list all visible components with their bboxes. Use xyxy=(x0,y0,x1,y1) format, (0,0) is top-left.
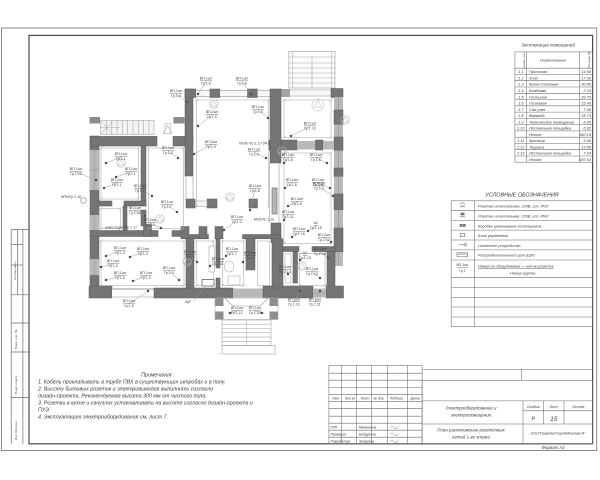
svg-text:Гр.1.9: Гр.1.9 xyxy=(253,110,263,114)
svg-text:1.7: 1.7 xyxy=(518,107,524,112)
svg-text:29.75: 29.75 xyxy=(580,94,592,99)
svg-text:ВП-1шт: ВП-1шт xyxy=(249,184,262,188)
svg-text:дизайн-проекта. Рекомендуемая: дизайн-проекта. Рекомендуемая высота 300… xyxy=(38,393,207,400)
svg-text:Гр.1.9: Гр.1.9 xyxy=(206,145,216,149)
svg-text:1.4: 1.4 xyxy=(518,88,524,93)
svg-text:МОБ/Гр.1.16: МОБ/Гр.1.16 xyxy=(254,218,274,222)
svg-text:Взам. инв. №: Взам. инв. № xyxy=(14,329,18,349)
svg-text:ВП-1шт: ВП-1шт xyxy=(236,77,249,81)
svg-text:ВП-1шт: ВП-1шт xyxy=(125,167,138,171)
svg-text:ВП-1шт: ВП-1шт xyxy=(114,246,127,250)
svg-text:Гр.1.2: Гр.1.2 xyxy=(145,223,155,227)
svg-text:Сан.узел: Сан.узел xyxy=(529,107,546,112)
svg-text:Гр.1.2: Гр.1.2 xyxy=(135,189,145,193)
svg-text:Гр.1.12: Гр.1.12 xyxy=(318,238,329,242)
svg-text:Гр.1.8: Гр.1.8 xyxy=(171,94,181,98)
svg-text:Гостиная: Гостиная xyxy=(529,94,547,99)
svg-text:ВП-2шт: ВП-2шт xyxy=(111,178,124,182)
svg-text:Крыльцо: Крыльцо xyxy=(529,138,546,143)
svg-text:Гр.1.15: Гр.1.15 xyxy=(293,232,304,236)
svg-text:ЩР: ЩР xyxy=(185,300,191,304)
svg-text:Гр.1.3: Гр.1.3 xyxy=(108,264,118,268)
svg-text:ВП-2шт: ВП-2шт xyxy=(144,218,157,222)
svg-text:Номер пом.: Номер пом. xyxy=(522,52,526,67)
svg-text:Гр.1.13: Гр.1.13 xyxy=(288,303,299,307)
svg-text:1.1: 1.1 xyxy=(518,69,523,74)
svg-text:Наименование: Наименование xyxy=(540,59,566,63)
svg-text:ВП-1шт: ВП-1шт xyxy=(226,247,239,251)
svg-text:АС: АС xyxy=(303,251,308,255)
svg-text:Веранда: Веранда xyxy=(529,113,545,118)
svg-text:Терраса: Терраса xyxy=(529,144,545,149)
svg-text:Гр.1.1: Гр.1.1 xyxy=(112,183,122,187)
svg-text:Бодрунова: Бодрунова xyxy=(359,433,376,437)
svg-text:ПУЭ.: ПУЭ. xyxy=(38,408,50,414)
svg-text:ВП-1шт: ВП-1шт xyxy=(200,77,213,81)
svg-text:1.11: 1.11 xyxy=(517,138,524,143)
svg-text:Гр.1.11: Гр.1.11 xyxy=(282,215,293,219)
svg-text:Электрооборудование и: Электрооборудование и xyxy=(446,406,497,411)
svg-text:ВП-1шт: ВП-1шт xyxy=(249,306,262,310)
svg-text:13.86: 13.86 xyxy=(581,144,592,149)
svg-text:5.96: 5.96 xyxy=(583,138,591,143)
svg-text:Гр.1.12: Гр.1.12 xyxy=(231,311,242,315)
svg-text:Лист: Лист xyxy=(360,397,370,401)
svg-text:Гр.1.15: Гр.1.15 xyxy=(310,226,321,230)
svg-text:1.8: 1.8 xyxy=(518,113,524,118)
svg-text:Номер группы: Номер группы xyxy=(510,272,536,276)
svg-text:1.9: 1.9 xyxy=(518,119,524,124)
svg-text:17.50: 17.50 xyxy=(581,76,592,81)
svg-text:ВП-1шт: ВП-1шт xyxy=(279,265,292,269)
svg-text:Гр.1.3: Гр.1.3 xyxy=(141,276,151,280)
svg-text:3. Розетки в кухне и санузлах: 3. Розетки в кухне и санузлах устанавлив… xyxy=(38,400,253,407)
svg-text:Мельников: Мельников xyxy=(359,426,377,430)
svg-text:Гр.1: Гр.1 xyxy=(459,269,465,273)
svg-text:ВП-1шт: ВП-1шт xyxy=(312,178,325,182)
svg-text:Оконечное устройство: Оконечное устройство xyxy=(478,244,521,248)
svg-text:УСЛОВНЫЕ ОБОЗНАЧЕНИЯ: УСЛОВНЫЕ ОБОЗНАЧЕНИЯ xyxy=(484,193,558,199)
svg-text:Захарова: Захарова xyxy=(359,440,374,444)
svg-text:ВП-1шт: ВП-1шт xyxy=(309,298,322,302)
svg-text:2. Высоту бытовых розеток и эл: 2. Высоту бытовых розеток и электровывод… xyxy=(37,387,213,393)
svg-text:№ док.: № док. xyxy=(374,397,385,401)
svg-text:Гр.1.3: Гр.1.3 xyxy=(232,220,242,224)
svg-text:Лестничная площадка: Лестничная площадка xyxy=(528,126,572,131)
svg-text:Блок управления: Блок управления xyxy=(478,234,508,238)
svg-text:6.90: 6.90 xyxy=(583,119,591,124)
svg-text:Гостевая: Гостевая xyxy=(529,101,547,106)
svg-text:ВП-1шт: ВП-1шт xyxy=(114,271,127,275)
svg-text:нижн.подкл./Гр.1.17: нижн.подкл./Гр.1.17 xyxy=(105,226,137,230)
svg-text:Итого:: Итого: xyxy=(529,132,542,137)
svg-text:Гр.1.7: Гр.1.7 xyxy=(162,205,172,209)
svg-text:Прихожая: Прихожая xyxy=(529,69,547,74)
svg-text:Розетка штепсельная, 220В, исп: Розетка штепсельная, 220В, исп. IP43 xyxy=(478,215,549,219)
svg-text:План расположения розеточных: План расположения розеточных xyxy=(437,428,505,433)
svg-text:ВП-1шт: ВП-1шт xyxy=(184,250,197,254)
svg-text:Коробка уравнивания потенциало: Коробка уравнивания потенциалов xyxy=(478,224,541,228)
svg-text:ВП-2шт: ВП-2шт xyxy=(206,110,219,114)
svg-text:ВП-1шт: ВП-1шт xyxy=(107,259,120,263)
svg-text:ВП-1шт: ВП-1шт xyxy=(161,200,174,204)
svg-text:ВП-1шт: ВП-1шт xyxy=(231,306,244,310)
svg-text:Подпись: Подпись xyxy=(390,397,404,401)
svg-text:Изм.: Изм. xyxy=(332,397,339,401)
svg-text:Гр.1.3: Гр.1.3 xyxy=(115,251,125,255)
svg-text:Гр.1.6: Гр.1.6 xyxy=(292,202,302,206)
svg-text:Разработал: Разработал xyxy=(331,440,351,444)
svg-text:2.34: 2.34 xyxy=(582,88,591,93)
svg-text:Гр.1.5: Гр.1.5 xyxy=(283,158,293,162)
svg-text:Листов: Листов xyxy=(571,405,585,409)
svg-text:Согласовано: Согласовано xyxy=(13,261,17,280)
svg-text:ВП-1шт: ВП-1шт xyxy=(115,152,128,156)
svg-text:1.13: 1.13 xyxy=(517,151,525,156)
svg-text:ВП-2шт: ВП-2шт xyxy=(318,233,331,237)
svg-text:1. Кабель прокладывать в трубе: 1. Кабель прокладывать в трубе ПВХ в сущ… xyxy=(38,380,226,386)
svg-text:Гр.1.10: Гр.1.10 xyxy=(129,211,140,215)
svg-text:Гр.1.2: Гр.1.2 xyxy=(163,151,173,155)
svg-text:Гр.1.11: Гр.1.11 xyxy=(212,262,223,266)
svg-text:ВП-1шт: ВП-1шт xyxy=(457,263,469,267)
svg-text:ВП-1шт: ВП-1шт xyxy=(123,299,136,303)
svg-text:ВП-1шт: ВП-1шт xyxy=(212,257,225,261)
svg-text:Гр.1.3: Гр.1.3 xyxy=(164,271,174,275)
svg-text:ВП-1шт: ВП-1шт xyxy=(282,153,295,157)
svg-text:Кухня-столовая: Кухня-столовая xyxy=(529,82,558,87)
svg-text:Стадия: Стадия xyxy=(527,405,540,409)
svg-text:Подп. и дата: Подп. и дата xyxy=(14,375,18,394)
svg-text:ВП-1шт: ВП-1шт xyxy=(310,153,323,157)
svg-text:1.6: 1.6 xyxy=(518,101,524,106)
svg-text:ВП-3шт: ВП-3шт xyxy=(291,197,304,201)
svg-text:Гр.1.9: Гр.1.9 xyxy=(249,153,259,157)
svg-text:Примечания:: Примечания: xyxy=(141,373,173,379)
svg-text:Гр.1.10: Гр.1.10 xyxy=(304,127,315,131)
svg-text:ВП-1шт: ВП-1шт xyxy=(314,247,327,251)
svg-text:ВП-1шт: ВП-1шт xyxy=(293,227,306,231)
svg-text:сетей 1-го этажа: сетей 1-го этажа xyxy=(452,435,490,440)
svg-text:ВП-2шт: ВП-2шт xyxy=(286,178,299,182)
svg-text:187.61: 187.61 xyxy=(579,157,591,162)
svg-text:Экспликация помещений: Экспликация помещений xyxy=(521,42,575,48)
svg-text:ВП-1шт: ВП-1шт xyxy=(231,215,244,219)
svg-text:15: 15 xyxy=(550,416,558,423)
svg-text:1.5: 1.5 xyxy=(518,94,524,99)
svg-text:30.86: 30.86 xyxy=(581,82,592,87)
svg-text:ВП-1шт: ВП-1шт xyxy=(304,122,317,126)
svg-text:Гр.1.1: Гр.1.1 xyxy=(126,172,136,176)
svg-text:4. Эксплуатацию электрооборуд: 4. Эксплуатацию электрооборудования см. … xyxy=(38,415,168,421)
svg-text:14.66: 14.66 xyxy=(581,69,592,74)
svg-text:ИОВ /Гр.1.17 (Ф): ИОВ /Гр.1.17 (Ф) xyxy=(239,142,269,146)
svg-text:Гр.1.10: Гр.1.10 xyxy=(70,172,81,176)
svg-text:ВП-1шт: ВП-1шт xyxy=(163,266,176,270)
svg-text:ИПН/Гр.1.16: ИПН/Гр.1.16 xyxy=(61,195,81,199)
svg-text:Гр.1.8: Гр.1.8 xyxy=(250,189,260,193)
svg-text:Гр.1.13: Гр.1.13 xyxy=(314,252,325,256)
svg-text:Дата: Дата xyxy=(410,397,420,401)
svg-text:28.74: 28.74 xyxy=(580,113,592,118)
svg-text:6.62: 6.62 xyxy=(583,126,591,131)
svg-text:1.10: 1.10 xyxy=(517,126,525,131)
svg-text:ВП-2шт: ВП-2шт xyxy=(137,247,150,251)
svg-text:Гр.1.8: Гр.1.8 xyxy=(201,82,211,86)
svg-text:ООО"ГражданСтройМонтаж-В": ООО"ГражданСтройМонтаж-В" xyxy=(530,432,585,436)
svg-text:Техническое помещение: Техническое помещение xyxy=(529,119,575,124)
svg-text:ВП-1шт: ВП-1шт xyxy=(282,210,295,214)
svg-text:160.19: 160.19 xyxy=(579,132,592,137)
svg-text:Проверил: Проверил xyxy=(331,433,347,437)
svg-text:ВП-1шт: ВП-1шт xyxy=(134,184,147,188)
svg-text:Итого:: Итого: xyxy=(529,157,542,162)
svg-text:ВП-1шт: ВП-1шт xyxy=(288,298,301,302)
svg-text:Гр.1.13: Гр.1.13 xyxy=(249,311,260,315)
svg-text:ВП-1шт: ВП-1шт xyxy=(162,146,175,150)
svg-text:1.12: 1.12 xyxy=(517,144,525,149)
svg-text:Кол.уч: Кол.уч xyxy=(345,397,355,401)
svg-text:Площадь м2: Площадь м2 xyxy=(587,51,591,68)
svg-text:АС: АС xyxy=(314,221,319,225)
svg-text:Гр.1.5: Гр.1.5 xyxy=(287,183,297,187)
svg-text:ВП-1шт: ВП-1шт xyxy=(252,105,265,109)
svg-text:Гр.1.1: Гр.1.1 xyxy=(116,157,126,161)
svg-text:Гр.1.8: Гр.1.8 xyxy=(237,82,247,86)
svg-text:ВП-1шт: ВП-1шт xyxy=(140,271,153,275)
svg-text:электроосвещение: электроосвещение xyxy=(451,413,492,418)
svg-text:Гр.1.3: Гр.1.3 xyxy=(138,252,148,256)
svg-text:Гр.1.5: Гр.1.5 xyxy=(311,158,321,162)
svg-text:ВП-1шт: ВП-1шт xyxy=(70,167,83,171)
svg-text:Лист: Лист xyxy=(548,405,558,409)
svg-text:1.3: 1.3 xyxy=(518,82,524,87)
svg-text:ГИП: ГИП xyxy=(331,426,338,430)
svg-text:Инв. № подл.: Инв. № подл. xyxy=(14,421,18,440)
svg-text:1.2: 1.2 xyxy=(518,76,524,81)
svg-text:ВП-3шт: ВП-3шт xyxy=(205,140,218,144)
svg-text:Гр.1.4: Гр.1.4 xyxy=(185,255,195,259)
svg-text:Гр.1.5: Гр.1.5 xyxy=(115,276,125,280)
svg-text:Кладовая: Кладовая xyxy=(529,88,546,93)
svg-text:Гр.1.7: Гр.1.7 xyxy=(245,256,255,260)
svg-text:ВП-1шт: ВП-1шт xyxy=(248,148,261,152)
svg-text:ВП-1шт: ВП-1шт xyxy=(129,206,142,210)
svg-text:15.46: 15.46 xyxy=(581,101,592,106)
svg-text:Гр.1.11: Гр.1.11 xyxy=(309,303,320,307)
svg-text:Гр.1.3: Гр.1.3 xyxy=(314,187,324,191)
svg-text:Распределительный щит (ЩР): Распределительный щит (ЩР) xyxy=(478,254,535,258)
svg-text:7.04: 7.04 xyxy=(583,151,591,156)
svg-text:Формат А3: Формат А3 xyxy=(542,445,566,450)
svg-text:ВП-1шт: ВП-1шт xyxy=(244,251,257,255)
svg-text:Гр.1.5: Гр.1.5 xyxy=(124,304,134,308)
svg-text:Лестничная площадка: Лестничная площадка xyxy=(528,151,572,156)
svg-text:Гр.1.13: Гр.1.13 xyxy=(306,272,317,276)
svg-text:7.08: 7.08 xyxy=(583,107,591,112)
svg-text:ВП-1шт: ВП-1шт xyxy=(306,267,319,271)
svg-text:Холл: Холл xyxy=(528,76,539,81)
svg-text:Гр.1.9: Гр.1.9 xyxy=(207,115,217,119)
svg-text:Розетка штепсельная, 220В, исп: Розетка штепсельная, 220В, исп. IP20 xyxy=(478,205,549,209)
svg-text:ВП-1шт: ВП-1шт xyxy=(170,89,183,93)
svg-text:Гр.1.5: Гр.1.5 xyxy=(313,183,323,187)
svg-text:Номер за оборудования — кол-во: Номер за оборудования — кол-во розеток xyxy=(478,265,554,269)
svg-text:Гр.1.7: Гр.1.7 xyxy=(227,252,237,256)
